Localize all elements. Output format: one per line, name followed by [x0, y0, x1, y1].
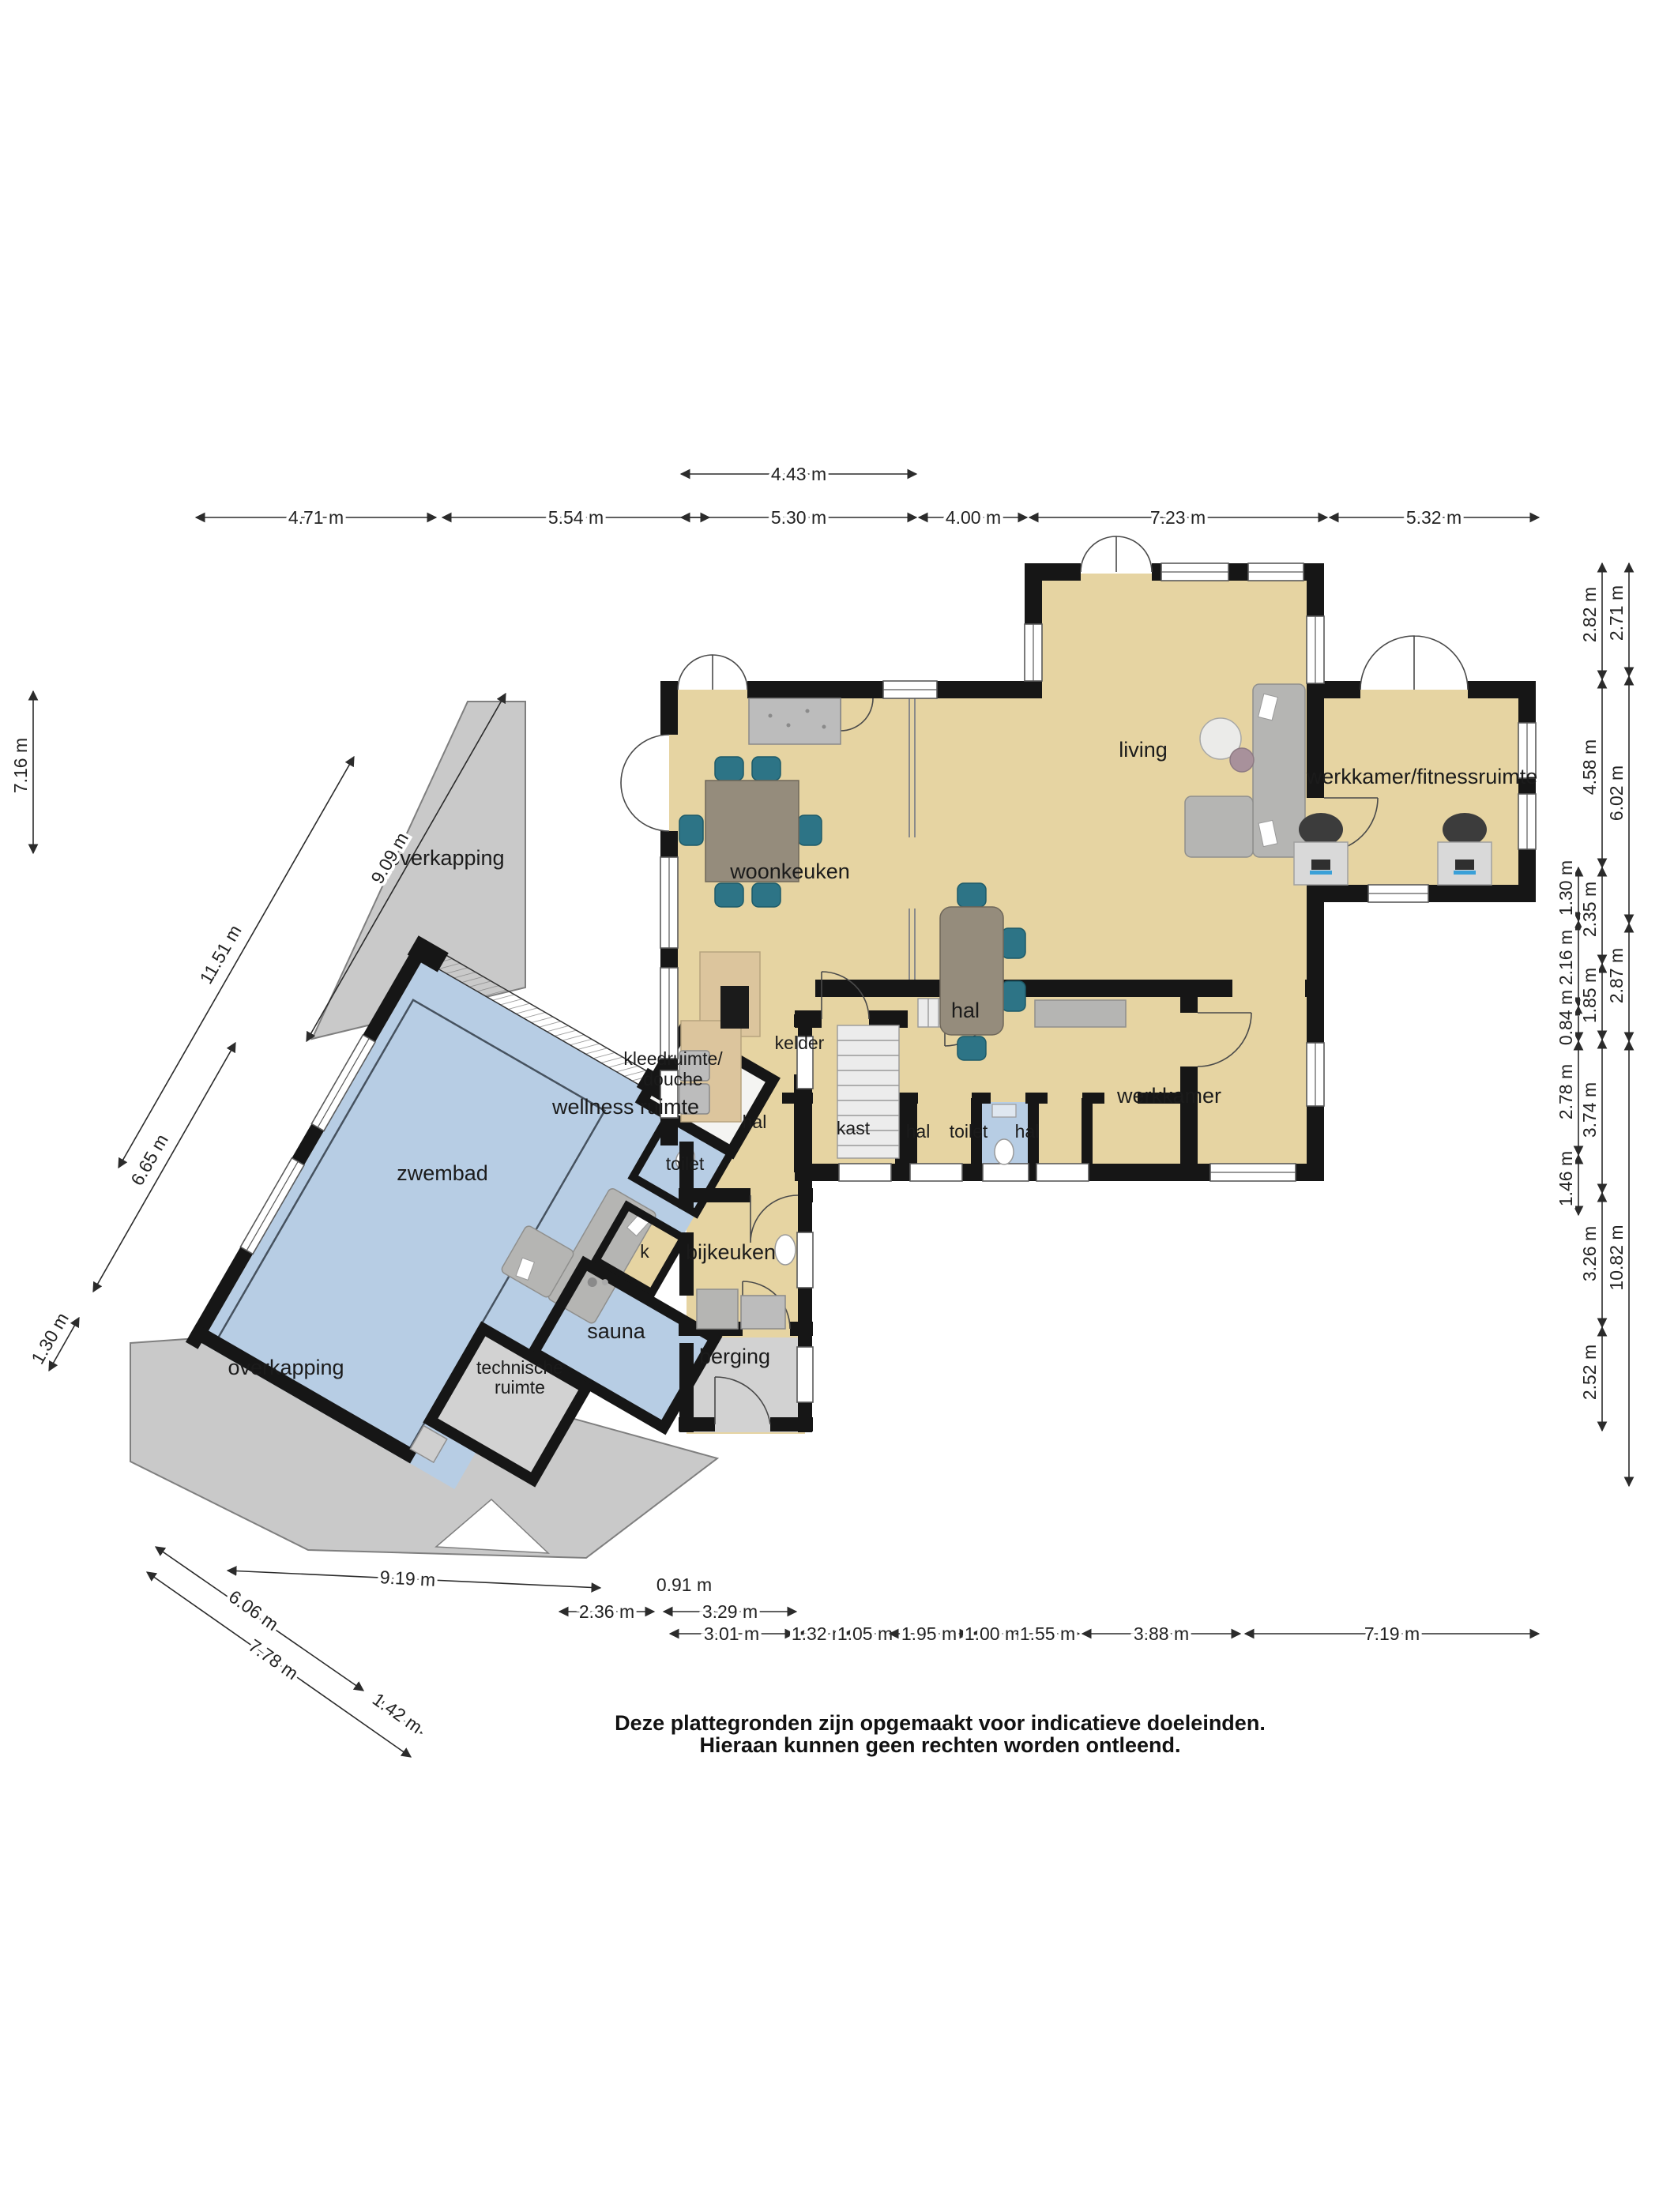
disclaimer-line-1: Deze plattegronden zijn opgemaakt voor i…: [615, 1711, 1266, 1735]
dim-right-outer-0: 2.71 m: [1606, 585, 1627, 641]
room-label-wellness: wellness ruimte: [551, 1095, 699, 1119]
toilet-main-bowl: [995, 1139, 1014, 1164]
desk-2: [1438, 813, 1492, 885]
dim-right-inner-1: 2.16 m: [1556, 930, 1576, 985]
floorplan-canvas: overkapping woonkeuken living werkkamer/…: [0, 0, 1659, 2212]
room-label-toilet-pool: toilet: [666, 1153, 705, 1174]
dim-bottom-091: 0.91 m: [656, 1574, 712, 1595]
dim-top-row-4: 7.23 m: [1150, 507, 1206, 528]
dim-right-mid-0: 2.82 m: [1579, 587, 1600, 642]
bijkeuken-counter: [741, 1296, 785, 1329]
dim-top-row-3: 4.00 m: [946, 507, 1001, 528]
room-label-woonkeuken: woonkeuken: [729, 860, 850, 883]
dim-diag-606: 6.06 m: [225, 1586, 283, 1635]
disclaimer-line-2: Hieraan kunnen geen rechten worden ontle…: [699, 1733, 1180, 1757]
room-label-zwembad: zwembad: [397, 1161, 488, 1185]
dim-right-mid-6: 2.52 m: [1579, 1345, 1600, 1400]
hal-sideboard: [1035, 1000, 1126, 1027]
dim-right-outer-3: 10.82 m: [1606, 1224, 1627, 1290]
dim-right-mid-1: 4.58 m: [1579, 739, 1600, 795]
dim-bottom-row3-2: 1.05 m: [837, 1623, 893, 1644]
room-label-hal-small-left: hal: [906, 1121, 931, 1142]
desk-1: [1294, 813, 1348, 885]
dim-right-mid-4: 3.74 m: [1579, 1082, 1600, 1138]
dim-bottom-row3-4: 1.00 m: [965, 1623, 1020, 1644]
dim-right-mid-5: 3.26 m: [1579, 1226, 1600, 1281]
room-label-werkkamer-fitnessruimte: werkkamer/fitnessruimte: [1306, 765, 1538, 788]
room-label-k: k: [640, 1241, 649, 1262]
dim-bottom-row2-0: 2.36 m: [579, 1601, 634, 1622]
room-label-living: living: [1119, 738, 1168, 762]
dim-right-mid-3: 1.85 m: [1579, 968, 1600, 1023]
dim-bottom-row3-0: 3.01 m: [704, 1623, 759, 1644]
dim-top-row-0: 4.71 m: [288, 507, 344, 528]
dim-right-outer-2: 2.87 m: [1606, 948, 1627, 1003]
dim-top-row-2: 5.30 m: [771, 507, 826, 528]
dim-right-inner-3: 2.78 m: [1556, 1064, 1576, 1119]
dim-bottom-row3-5: 1.55 m: [1020, 1623, 1075, 1644]
dim-diag-130: 1.30 m: [27, 1309, 73, 1367]
dim-right-inner-2: 0.84 m: [1556, 990, 1576, 1045]
room-label-hal-main: hal: [951, 999, 980, 1022]
room-label-kleedruimte-1: kleedruimte/: [623, 1048, 723, 1069]
room-label-toilet-main: toilet: [950, 1121, 988, 1142]
room-label-hal-wing: hal: [743, 1112, 767, 1132]
room-label-technische-2: ruimte: [495, 1377, 545, 1398]
room-label-bijkeuken: bijkeuken: [686, 1240, 776, 1264]
dim-bottom-row3-3: 1.95 m: [901, 1623, 957, 1644]
dim-right-outer-1: 6.02 m: [1606, 766, 1627, 821]
room-label-hal-small-right: hal: [1015, 1121, 1040, 1142]
dim-diag-919: 9.19 m: [379, 1567, 436, 1590]
dim-diag-665: 6.65 m: [126, 1130, 172, 1189]
dim-bottom-row3-7: 7.19 m: [1364, 1623, 1420, 1644]
room-label-werkkamer: werkkamer: [1116, 1084, 1221, 1108]
room-label-berging: berging: [699, 1345, 770, 1368]
dim-top-row-1: 5.54 m: [548, 507, 604, 528]
dim-bottom-row2-1: 3.29 m: [702, 1601, 758, 1622]
toilet-main-basin: [992, 1104, 1016, 1117]
bijkeuken-sink: [775, 1235, 796, 1265]
room-label-overkapping-bottom: overkapping: [228, 1356, 344, 1379]
room-label-technische-1: technische: [476, 1357, 563, 1378]
dim-diag-1151: 11.51 m: [195, 921, 245, 987]
dim-bottom-row3-6: 3.88 m: [1134, 1623, 1189, 1644]
dim-right-inner-0: 1.30 m: [1556, 860, 1576, 916]
side-table-small: [1230, 748, 1254, 772]
dim-right-inner-4: 1.46 m: [1556, 1151, 1576, 1206]
dim-diag-142: 1.42 m: [369, 1689, 427, 1738]
room-label-kleedruimte-2: douche: [643, 1069, 702, 1089]
dim-left-716: 7.16 m: [10, 738, 31, 793]
room-label-sauna: sauna: [587, 1319, 646, 1343]
room-label-kast: kast: [837, 1118, 871, 1138]
bijkeuken-washer: [697, 1289, 738, 1329]
dim-top-443: 4.43 m: [771, 464, 826, 484]
dim-top-row-5: 5.32 m: [1406, 507, 1461, 528]
room-label-kelder: kelder: [775, 1033, 825, 1053]
dim-right-mid-2: 2.35 m: [1579, 882, 1600, 937]
kitchen-counter: [749, 698, 841, 744]
